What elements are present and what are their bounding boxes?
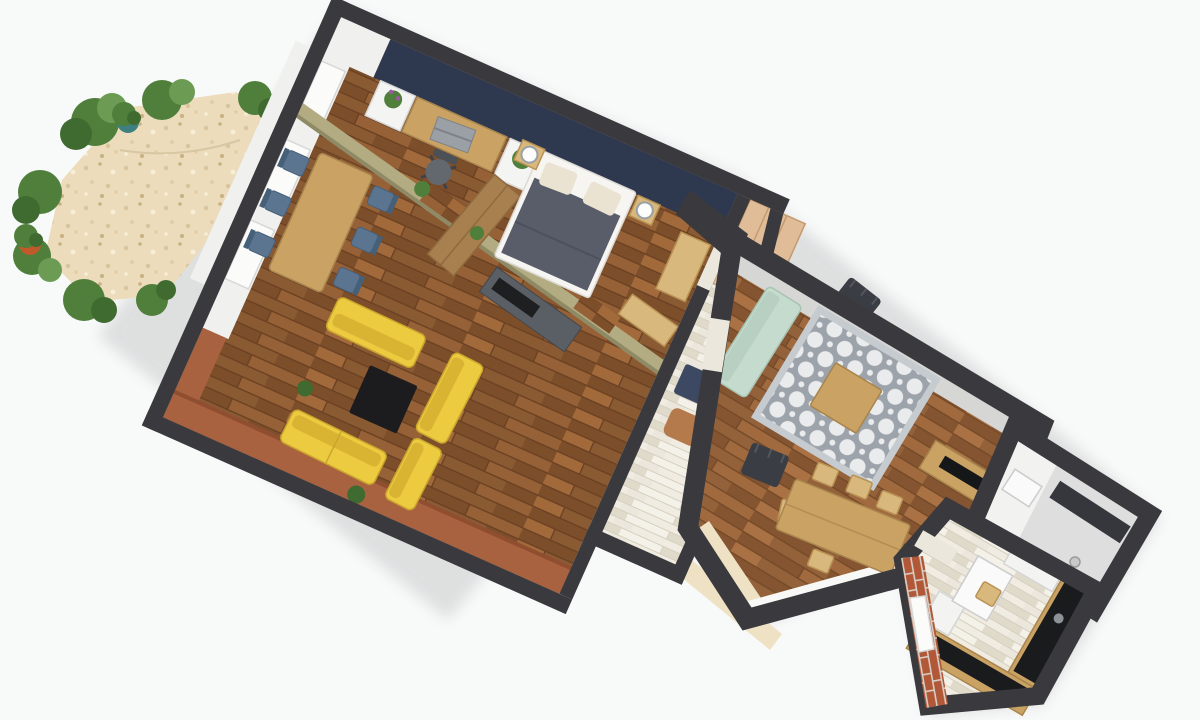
- floor-drain: [1070, 557, 1080, 567]
- floorplan-viewport[interactable]: { "app": { "view": "3d-floorplan-top-vie…: [0, 0, 1200, 720]
- floorplan-canvas[interactable]: 3d-floorplan-top-view: [0, 0, 1200, 720]
